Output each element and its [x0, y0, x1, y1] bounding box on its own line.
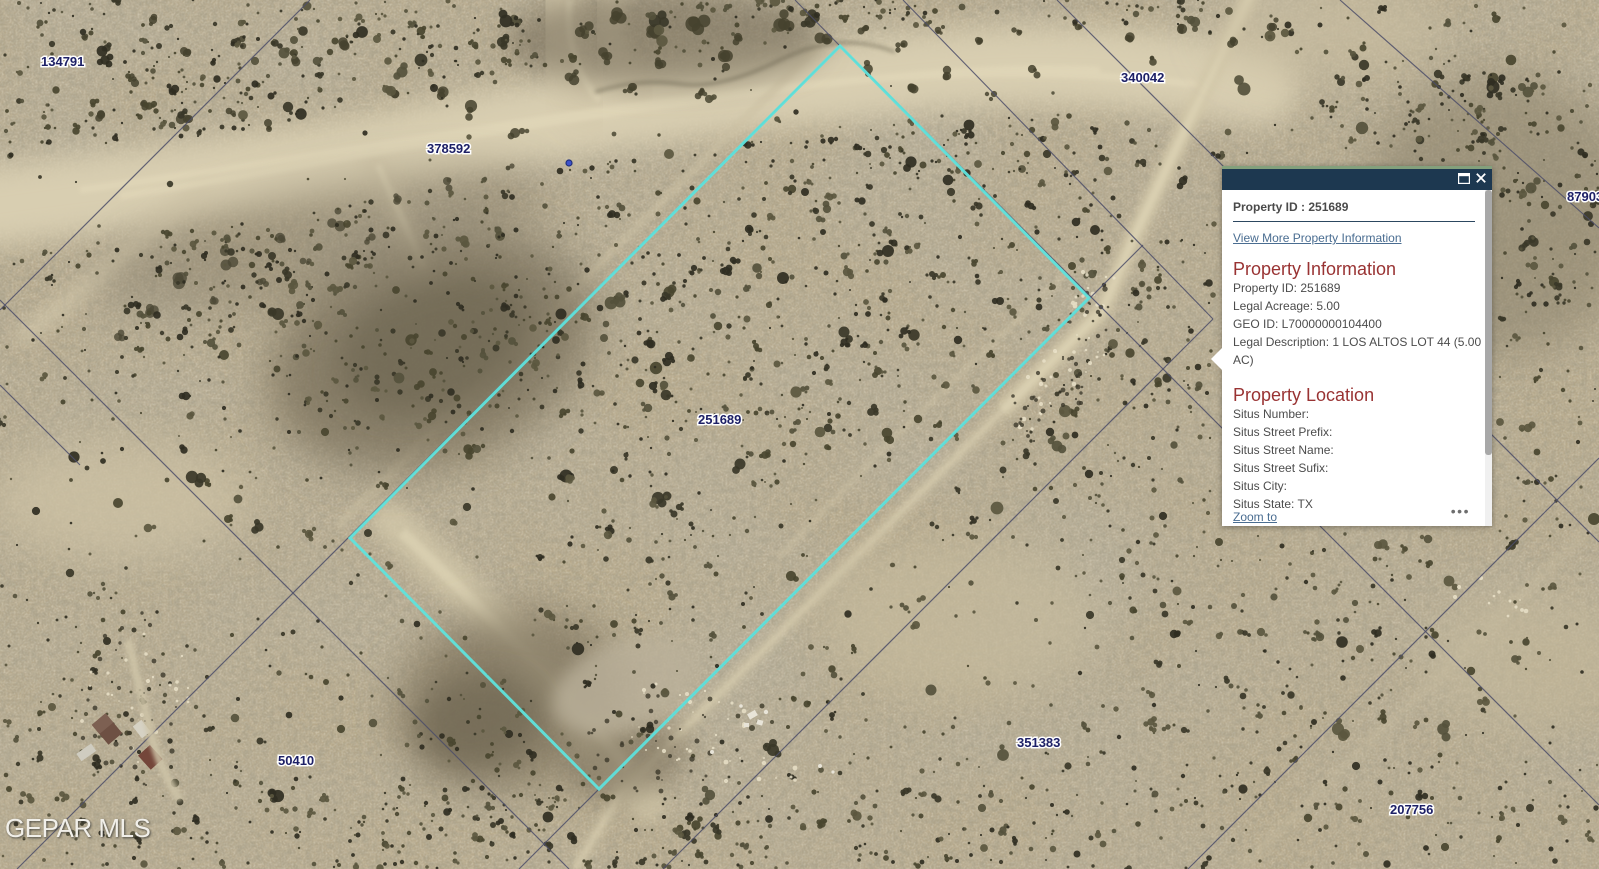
svg-text:50410: 50410	[278, 753, 314, 768]
svg-text:207756: 207756	[1390, 802, 1433, 817]
svg-text:378592: 378592	[427, 141, 470, 156]
svg-text:340042: 340042	[1121, 70, 1164, 85]
svg-text:251689: 251689	[698, 412, 741, 427]
svg-text:351383: 351383	[1017, 735, 1060, 750]
svg-text:134791: 134791	[41, 54, 84, 69]
svg-text:87903: 87903	[1567, 189, 1599, 204]
